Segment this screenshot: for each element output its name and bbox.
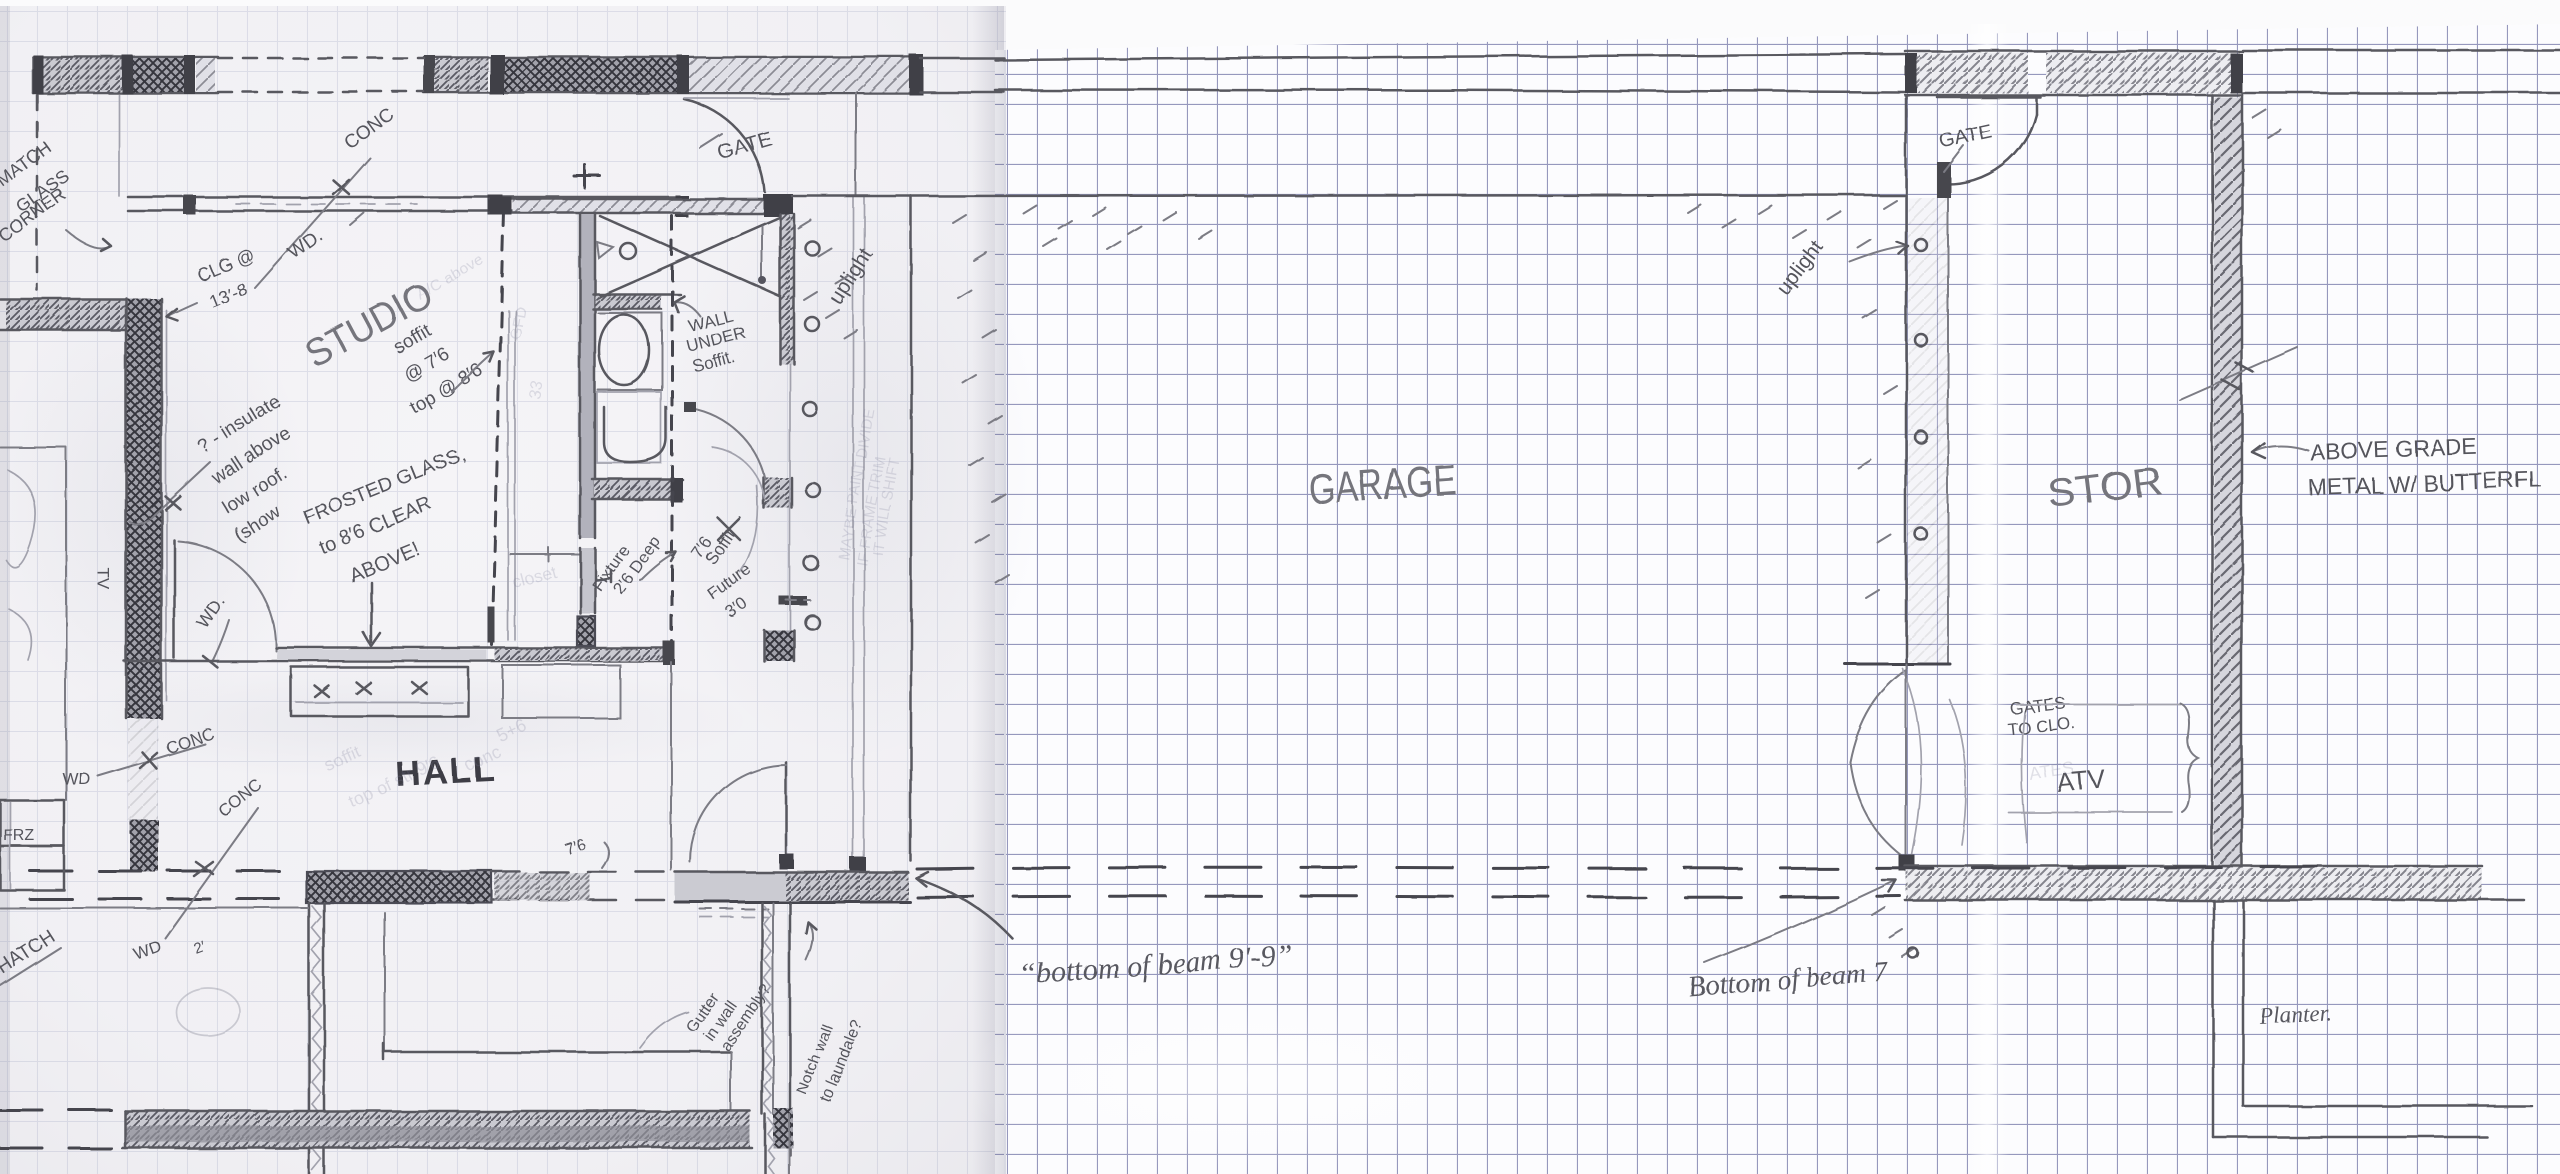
svg-text:FRZ: FRZ bbox=[3, 827, 34, 844]
svg-text:33: 33 bbox=[527, 380, 547, 401]
svg-text:WD: WD bbox=[62, 769, 90, 788]
svg-text:TV: TV bbox=[94, 568, 113, 590]
svg-text:Planter.: Planter. bbox=[2258, 1000, 2332, 1029]
svg-text:GARAGE: GARAGE bbox=[1307, 456, 1458, 515]
